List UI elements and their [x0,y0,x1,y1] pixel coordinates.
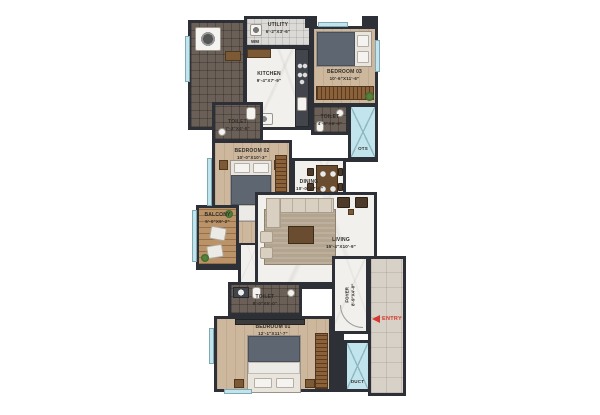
dining-label: DINING 10'-0"X7'-0" [296,179,322,192]
room-toilet-bed3: TOILET 4'-6"X6'-0" [311,104,349,135]
toilet2-dims: 7'-3"X4'-0" [215,126,260,132]
duct-name: DUCT [351,379,364,384]
dining-name: DINING [300,179,319,185]
room-foyer: FOYER 8'-9"X4'-0" [332,256,369,334]
wall-chunk-ots [346,158,378,162]
utility-label: UTILITY 6'-2"X3'-6" [247,22,309,35]
bedroom1-wardrobe [315,333,328,389]
window-utility [185,36,190,82]
toilet1-name: TOILET [256,294,275,300]
living-accent-chair-1 [337,197,350,208]
bedroom3-plant-icon [365,92,374,101]
living-name: LIVING [332,237,350,243]
wall-chunk-balcony [196,265,240,270]
living-dims: 15'-4"X10'-9" [306,244,376,250]
window-balcony [192,210,197,262]
wm-label: WM [251,39,259,44]
bedroom1-pillow-2 [276,378,294,388]
room-toilet-bed1: TOILET 8'-0"X5'-0" [228,282,302,316]
bedroom2-nightstand-left [219,160,228,170]
living-side-table [348,209,354,215]
bedroom3-bed [316,31,372,67]
window-bedroom3-top [318,22,348,27]
bedroom3-blanket [317,32,355,66]
bedroom2-pillow-2 [253,163,269,173]
toilet2-name: TOILET [228,119,247,125]
floor-plan: UTILITY 6'-2"X3'-6" WM KITCHEN 9'-4"X7'-… [0,0,600,415]
bedroom3-pillow-1 [357,35,369,47]
room-balcony: BALCONY 5'-0"X9'-2" [196,205,239,267]
dining-chair-4 [338,168,343,176]
window-bedroom1-left [209,328,214,364]
living-accent-chair-2 [355,197,368,208]
bedroom1-nightstand-right [305,379,315,388]
window-bedroom3-right [375,40,380,72]
wall-chunk-top [305,16,317,28]
balcony-dims: 5'-0"X9'-2" [199,219,236,225]
bedroom2-dims: 10'-0"X10'-3" [215,155,289,161]
duct-label: DUCT [347,379,368,385]
living-label: LIVING 15'-4"X10'-9" [306,237,376,250]
ots-shaft: OTS [348,104,378,160]
bedroom2-pillow-1 [234,163,250,173]
kitchen-dims: 9'-4"X7'-9" [247,78,291,84]
stove-icon [296,61,308,87]
room-utility: UTILITY 6'-2"X3'-6" WM [244,16,312,48]
ots-name: OTS [358,146,368,151]
dining-dims: 10'-0"X7'-0" [296,186,322,192]
toilet1-dims: 8'-0"X5'-0" [231,301,299,307]
bedroom2-label: BEDROOM 02 10'-0"X10'-3" [215,148,289,161]
balcony-name: BALCONY [204,212,230,218]
bedroom1-bed [247,335,301,393]
washing-machine-icon [195,27,221,51]
kitchen-label: KITCHEN 9'-4"X7'-9" [247,71,291,84]
room-bedroom-03: BEDROOM 03 10'-6"X11'-6" [311,26,378,106]
entry-corridor: ENTRY [368,256,406,396]
dining-chair-5 [338,183,343,191]
bedroom3-pillow-2 [357,51,369,63]
wall-chunk-duct [332,334,344,392]
kitchen-shelf [247,49,271,58]
balcony-plant-bottom-icon [201,254,209,262]
utility-dims: 6'-2"X3'-6" [247,29,309,35]
wall-chunk-top-right [362,16,378,28]
balcony-seat-1 [209,226,227,242]
toilet3-label: TOILET 4'-6"X6'-0" [314,114,346,127]
entry-marker: ENTRY [372,315,402,323]
toilet1-label: TOILET 8'-0"X5'-0" [231,294,299,307]
dining-chair-1 [307,168,314,176]
room-bedroom-01: BEDROOM 01 12'-1"X11'-7" [214,316,332,392]
living-armchair-2 [260,247,273,259]
duct-shaft: DUCT [344,340,371,392]
wall-chunk-foyer [302,282,334,289]
foyer-name: FOYER [345,287,350,303]
living-sofa-chaise [266,198,281,228]
bedroom1-label: BEDROOM 01 12'-1"X11'-7" [217,324,329,337]
room-toilet-common: TOILET 7'-3"X4'-0" [212,102,263,142]
ots-label: OTS [351,146,375,152]
bedroom1-nightstand-left [234,379,244,388]
foyer-dims: 8'-9"X4'-0" [350,284,355,306]
bedroom3-label: BEDROOM 03 10'-6"X11'-6" [314,69,375,82]
toilet2-label: TOILET 7'-3"X4'-0" [215,119,260,132]
window-bedroom2 [207,158,212,206]
bedroom1-sheet [248,362,300,374]
bedroom1-dims: 12'-1"X11'-7" [217,331,329,337]
kitchen-sink [297,97,307,111]
balcony-label: BALCONY 5'-0"X9'-2" [199,212,236,225]
window-bedroom1-bottom [224,389,252,394]
utility-name: UTILITY [268,22,288,28]
bedroom1-pillow-1 [254,378,272,388]
entry-arrow-icon [372,315,380,323]
bedroom1-blanket [248,336,300,362]
kitchen-name: KITCHEN [257,71,281,77]
laundry-shelf [225,51,241,61]
toilet3-dims: 4'-6"X6'-0" [314,121,346,127]
bedroom3-dims: 10'-6"X11'-6" [314,76,375,82]
foyer-label: FOYER 8'-9"X4'-0" [335,259,366,331]
bedroom1-name: BEDROOM 01 [255,324,290,330]
bedroom2-name: BEDROOM 02 [234,148,269,154]
entry-label: ENTRY [382,316,402,322]
living-armchair-1 [260,231,273,243]
toilet3-name: TOILET [321,114,340,120]
bedroom3-name: BEDROOM 03 [327,69,362,75]
